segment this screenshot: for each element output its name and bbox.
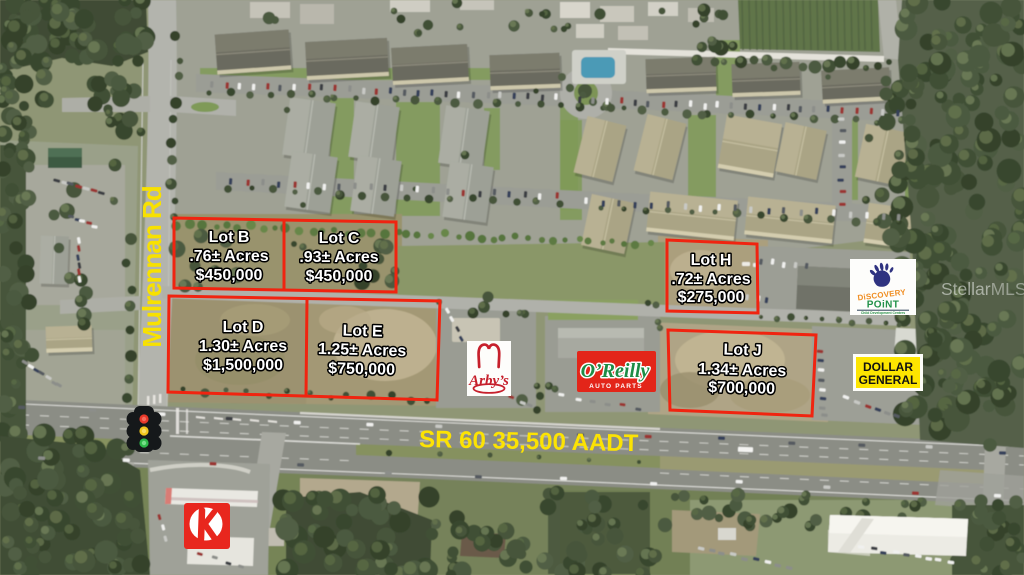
svg-text:SR 60 35,500 AADT: SR 60 35,500 AADT: [419, 426, 639, 457]
svg-text:$450,000: $450,000: [306, 268, 373, 285]
svg-text:.93± Acres: .93± Acres: [299, 249, 378, 266]
svg-text:$700,000: $700,000: [708, 379, 775, 398]
svg-text:AUTO PARTS: AUTO PARTS: [589, 383, 643, 390]
svg-text:Lot B: Lot B: [209, 229, 250, 246]
svg-text:$450,000: $450,000: [196, 267, 263, 284]
svg-text:GENERAL: GENERAL: [859, 373, 918, 387]
svg-text:Lot H: Lot H: [691, 252, 732, 269]
svg-text:.76± Acres: .76± Acres: [189, 248, 268, 265]
svg-text:$750,000: $750,000: [328, 360, 395, 379]
svg-text:1.25± Acres: 1.25± Acres: [318, 341, 407, 360]
svg-text:$1,500,000: $1,500,000: [203, 357, 283, 374]
svg-text:1.34± Acres: 1.34± Acres: [698, 361, 787, 380]
svg-text:StellarMLS: StellarMLS: [941, 279, 1024, 299]
svg-text:Child Development Centers: Child Development Centers: [861, 311, 905, 315]
svg-text:POiNT: POiNT: [867, 300, 900, 311]
svg-text:DOLLAR: DOLLAR: [863, 360, 913, 374]
svg-text:Lot D: Lot D: [223, 319, 264, 336]
svg-text:O’Reilly: O’Reilly: [581, 360, 650, 382]
svg-text:Lot C: Lot C: [319, 230, 360, 247]
svg-text:Mulrennan Rd: Mulrennan Rd: [137, 186, 167, 347]
svg-text:.72± Acres: .72± Acres: [671, 271, 750, 288]
svg-text:Lot E: Lot E: [342, 322, 383, 340]
svg-text:$275,000: $275,000: [678, 289, 745, 306]
svg-text:Lot J: Lot J: [723, 342, 762, 360]
svg-text:1.30± Acres: 1.30± Acres: [199, 338, 287, 355]
